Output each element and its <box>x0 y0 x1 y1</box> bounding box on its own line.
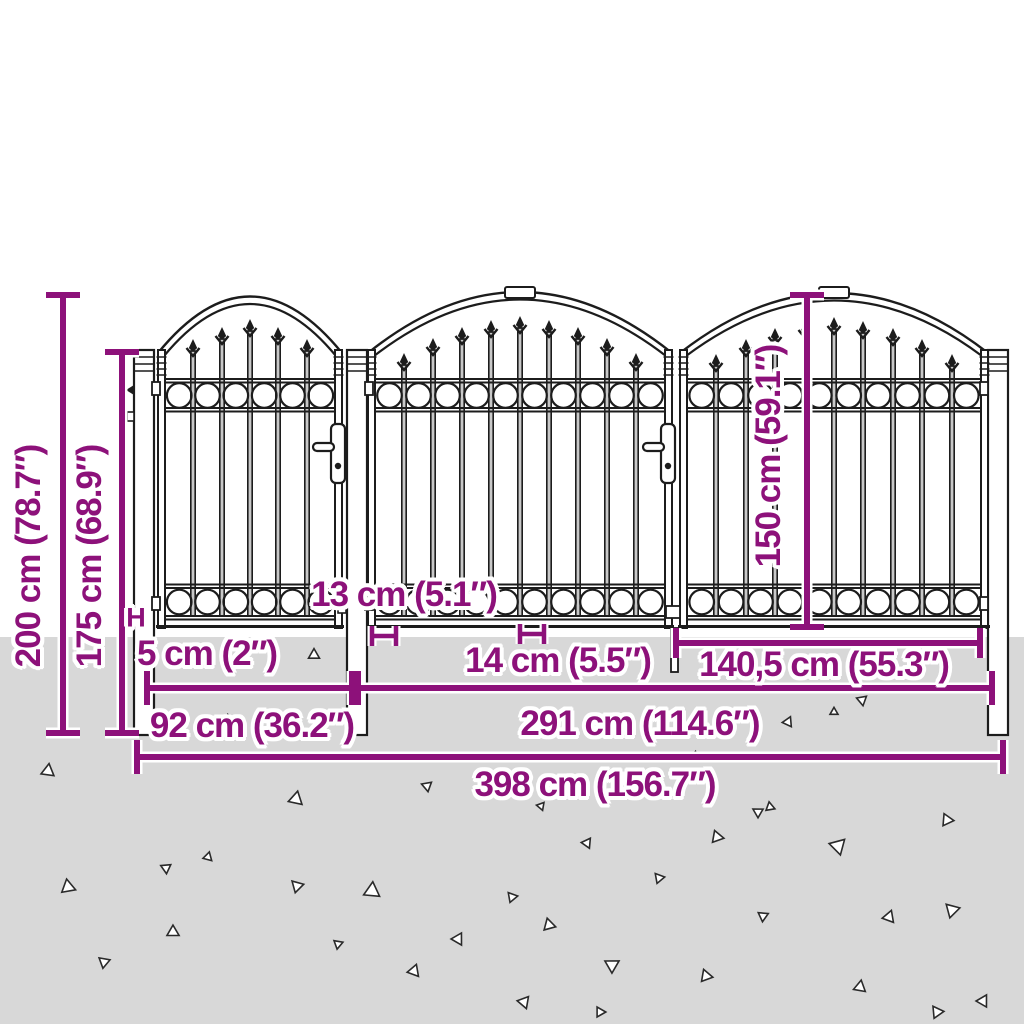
dimension-diagram: 200 cm (78.7″) 175 cm (68.9″) 150 cm (59… <box>0 0 1024 1024</box>
dimension-lines <box>0 0 1024 1024</box>
dim-label-bar-gap-small: 13 cm (5.1″) <box>311 575 497 615</box>
dim-label-single-gate-width: 92 cm (36.2″) <box>150 706 354 746</box>
dim-label-structure-height: 175 cm (68.9″) <box>70 445 110 668</box>
dim-label-leaf-width: 140,5 cm (55.3″) <box>699 645 949 685</box>
dim-marker-h: H <box>126 603 146 634</box>
dim-label-leaf-height: 150 cm (59.1″) <box>749 345 789 568</box>
dim-label-double-gate-width: 291 cm (114.6″) <box>520 704 759 744</box>
dim-label-bar-gap-large: 14 cm (5.5″) <box>465 641 651 681</box>
dim-label-total-width: 398 cm (156.7″) <box>474 765 715 805</box>
dim-label-ground-clearance: 5 cm (2″) <box>137 634 277 674</box>
dim-label-total-height: 200 cm (78.7″) <box>9 445 49 668</box>
